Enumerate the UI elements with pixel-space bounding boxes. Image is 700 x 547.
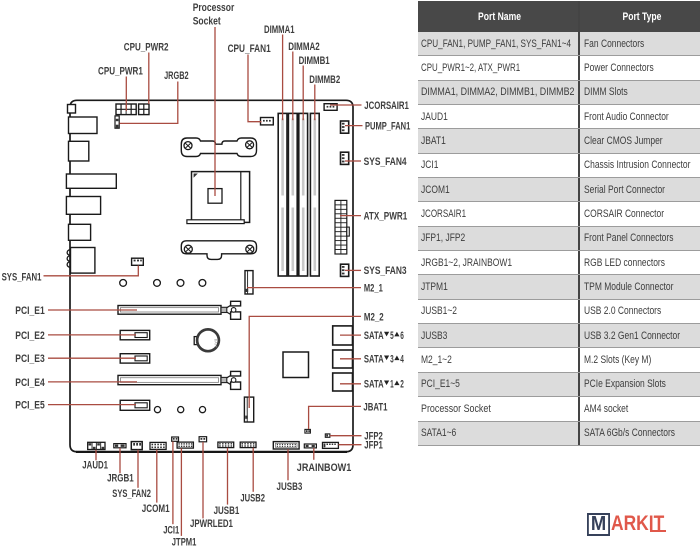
svg-text:JRGB1: JRGB1	[107, 473, 134, 485]
svg-text:Socket: Socket	[193, 16, 221, 28]
svg-text:JRAINBOW1: JRAINBOW1	[297, 462, 352, 474]
svg-text:DIMMA1: DIMMA1	[264, 24, 295, 36]
svg-text:Processor: Processor	[193, 2, 235, 14]
svg-text:JUSB2: JUSB2	[240, 492, 265, 504]
svg-text:JCORSAIR1: JCORSAIR1	[364, 100, 409, 112]
svg-text:JCOM1: JCOM1	[142, 503, 170, 515]
svg-text:BATT: BATT	[213, 339, 217, 349]
svg-text:PCI_E4: PCI_E4	[15, 377, 45, 389]
svg-text:DIMMB1: DIMMB1	[299, 55, 330, 67]
svg-text:4: 4	[400, 354, 404, 366]
svg-text:CPU_FAN1: CPU_FAN1	[228, 43, 271, 55]
svg-text:PCI_E2: PCI_E2	[15, 330, 44, 342]
svg-text:PCI_E3: PCI_E3	[15, 353, 44, 365]
svg-text:ATX_PWR1: ATX_PWR1	[364, 211, 408, 223]
svg-text:JUSB3: JUSB3	[277, 481, 303, 493]
svg-text:1: 1	[390, 379, 394, 391]
svg-text:JAUD1: JAUD1	[82, 460, 108, 472]
svg-text:SYS_FAN4: SYS_FAN4	[364, 156, 408, 168]
svg-text:CPU_PWR2: CPU_PWR2	[124, 42, 169, 54]
svg-text:6: 6	[400, 330, 404, 342]
svg-text:SATA: SATA	[364, 379, 384, 391]
svg-text:JPWRLED1: JPWRLED1	[190, 518, 233, 530]
svg-text:PCI_E5: PCI_E5	[15, 400, 44, 412]
svg-text:JBAT1: JBAT1	[363, 401, 387, 413]
svg-text:JCI1: JCI1	[163, 525, 179, 537]
svg-text:PUMP_FAN1: PUMP_FAN1	[365, 121, 410, 133]
svg-text:JRGB2: JRGB2	[164, 70, 189, 82]
svg-text:DIMMA2: DIMMA2	[288, 41, 320, 53]
svg-text:JTPM1: JTPM1	[172, 536, 197, 547]
svg-text:M2_1: M2_1	[364, 283, 383, 295]
svg-text:SYS_FAN1: SYS_FAN1	[2, 272, 42, 284]
svg-text:DIMMB2: DIMMB2	[309, 74, 340, 86]
svg-text:JFP1: JFP1	[364, 440, 383, 452]
svg-text:CPU_PWR1: CPU_PWR1	[98, 66, 143, 78]
svg-text:SATA: SATA	[364, 354, 384, 366]
svg-text:SATA: SATA	[364, 330, 384, 342]
svg-text:SYS_FAN2: SYS_FAN2	[112, 488, 151, 500]
svg-text:SYS_FAN3: SYS_FAN3	[364, 265, 407, 277]
svg-text:2: 2	[400, 379, 404, 391]
svg-text:PCI_E1: PCI_E1	[15, 305, 44, 317]
svg-text:3: 3	[390, 354, 394, 366]
svg-text:5: 5	[390, 330, 394, 342]
svg-text:JUSB1: JUSB1	[214, 505, 240, 517]
svg-text:M2_2: M2_2	[364, 311, 384, 323]
